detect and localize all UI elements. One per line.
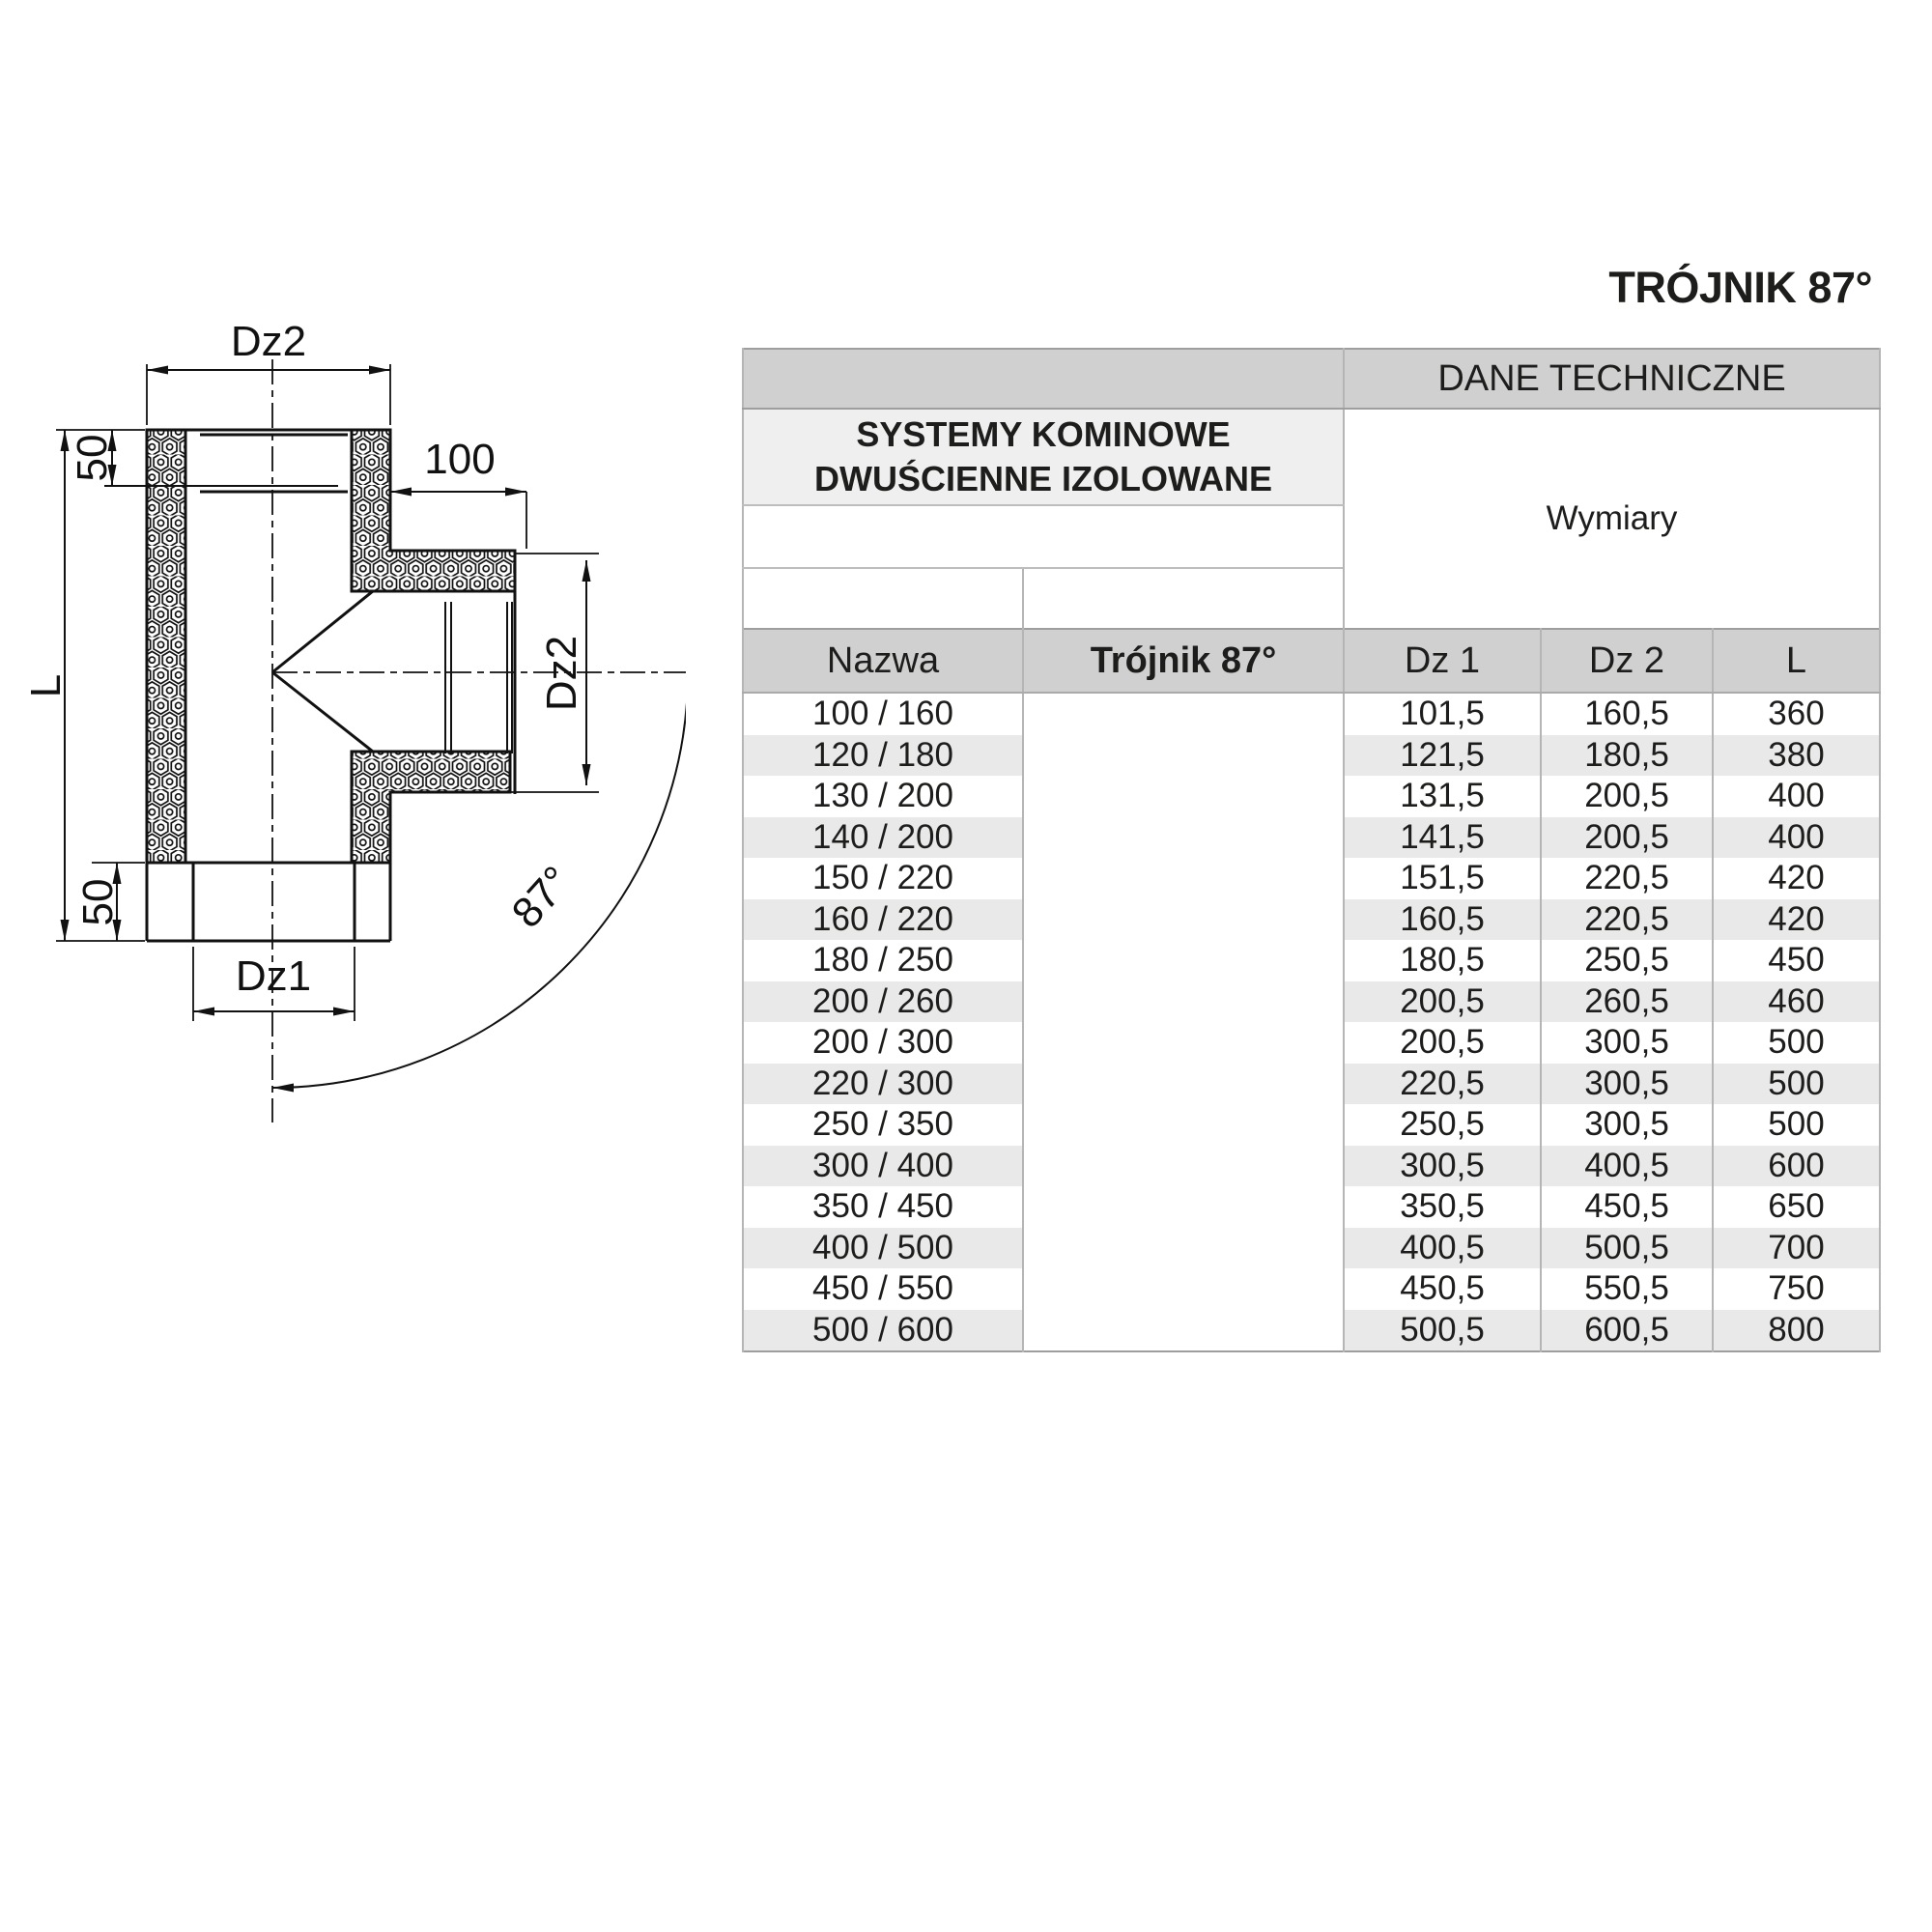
col-header-dz1: Dz 1 xyxy=(1344,629,1541,693)
extension-lines xyxy=(56,364,599,1021)
cell-l: 700 xyxy=(1713,1228,1880,1269)
cell-l: 420 xyxy=(1713,899,1880,941)
cell-l: 650 xyxy=(1713,1186,1880,1228)
angle-arc xyxy=(272,682,686,1088)
cell-dz2: 250,5 xyxy=(1541,940,1713,981)
cell-nazwa: 120 / 180 xyxy=(743,735,1023,777)
cell-nazwa: 300 / 400 xyxy=(743,1146,1023,1187)
cell-nazwa: 100 / 160 xyxy=(743,693,1023,735)
cell-l: 600 xyxy=(1713,1146,1880,1187)
technical-drawing: Dz2 50 L 100 Dz2 50 Dz1 87° xyxy=(29,241,686,1159)
cell-l: 360 xyxy=(1713,693,1880,735)
header-dane-techniczne: DANE TECHNICZNE xyxy=(1344,349,1880,409)
cell-l: 460 xyxy=(1713,981,1880,1023)
wymiary-cell: Wymiary xyxy=(1344,409,1880,629)
cell-dz2: 220,5 xyxy=(1541,858,1713,899)
cell-dz2: 500,5 xyxy=(1541,1228,1713,1269)
spacer-cell xyxy=(743,505,1344,568)
cell-dz1: 200,5 xyxy=(1344,1022,1541,1064)
spacer-cell xyxy=(1023,568,1344,629)
cell-l: 420 xyxy=(1713,858,1880,899)
cell-dz2: 450,5 xyxy=(1541,1186,1713,1228)
data-table: DANE TECHNICZNE SYSTEMY KOMINOWE DWUŚCIE… xyxy=(742,348,1881,1352)
cell-nazwa: 500 / 600 xyxy=(743,1310,1023,1352)
cell-nazwa: 350 / 450 xyxy=(743,1186,1023,1228)
header-band-row: DANE TECHNICZNE xyxy=(743,349,1880,409)
product-group-line2: DWUŚCIENNE IZOLOWANE xyxy=(744,457,1343,501)
cell-dz1: 500,5 xyxy=(1344,1310,1541,1352)
col-header-nazwa: Nazwa xyxy=(743,629,1023,693)
insulation-hatch xyxy=(147,430,515,863)
cell-l: 400 xyxy=(1713,817,1880,859)
cell-dz1: 151,5 xyxy=(1344,858,1541,899)
cell-nazwa: 160 / 220 xyxy=(743,899,1023,941)
page: TRÓJNIK 87° xyxy=(0,0,1932,1932)
product-group-cell: SYSTEMY KOMINOWE DWUŚCIENNE IZOLOWANE xyxy=(743,409,1344,505)
spacer-cell xyxy=(743,568,1023,629)
cell-l: 380 xyxy=(1713,735,1880,777)
cell-nazwa: 140 / 200 xyxy=(743,817,1023,859)
cell-dz2: 600,5 xyxy=(1541,1310,1713,1352)
col-header-l: L xyxy=(1713,629,1880,693)
cell-dz1: 350,5 xyxy=(1344,1186,1541,1228)
cell-l: 800 xyxy=(1713,1310,1880,1352)
cell-dz1: 300,5 xyxy=(1344,1146,1541,1187)
cell-dz2: 550,5 xyxy=(1541,1268,1713,1310)
cell-nazwa: 400 / 500 xyxy=(743,1228,1023,1269)
cell-dz2: 300,5 xyxy=(1541,1104,1713,1146)
cell-dz1: 400,5 xyxy=(1344,1228,1541,1269)
product-image-cell xyxy=(1023,693,1344,1351)
cell-dz2: 260,5 xyxy=(1541,981,1713,1023)
cell-dz2: 300,5 xyxy=(1541,1064,1713,1105)
dim-label-dz1: Dz1 xyxy=(236,952,311,1000)
cell-nazwa: 250 / 350 xyxy=(743,1104,1023,1146)
cell-dz1: 101,5 xyxy=(1344,693,1541,735)
dim-label-50-top: 50 xyxy=(69,435,116,482)
cell-nazwa: 130 / 200 xyxy=(743,776,1023,817)
cell-nazwa: 450 / 550 xyxy=(743,1268,1023,1310)
cell-dz1: 200,5 xyxy=(1344,981,1541,1023)
cell-l: 750 xyxy=(1713,1268,1880,1310)
cell-nazwa: 220 / 300 xyxy=(743,1064,1023,1105)
cell-dz1: 160,5 xyxy=(1344,899,1541,941)
cell-dz1: 180,5 xyxy=(1344,940,1541,981)
cell-nazwa: 180 / 250 xyxy=(743,940,1023,981)
cell-dz2: 200,5 xyxy=(1541,817,1713,859)
cell-dz2: 400,5 xyxy=(1541,1146,1713,1187)
cell-dz2: 180,5 xyxy=(1541,735,1713,777)
product-group-line1: SYSTEMY KOMINOWE xyxy=(744,412,1343,457)
cell-l: 400 xyxy=(1713,776,1880,817)
dim-label-50-bottom: 50 xyxy=(74,879,122,926)
dim-label-dz2-branch: Dz2 xyxy=(538,636,585,711)
cell-dz2: 160,5 xyxy=(1541,693,1713,735)
cell-dz2: 300,5 xyxy=(1541,1022,1713,1064)
cell-dz1: 121,5 xyxy=(1344,735,1541,777)
cell-nazwa: 150 / 220 xyxy=(743,858,1023,899)
table-row: 100 / 160 101,5 160,5 360 xyxy=(743,693,1880,735)
dim-label-dz2-top: Dz2 xyxy=(231,318,306,365)
cell-dz1: 450,5 xyxy=(1344,1268,1541,1310)
cell-l: 500 xyxy=(1713,1064,1880,1105)
cell-dz1: 250,5 xyxy=(1344,1104,1541,1146)
cell-dz1: 220,5 xyxy=(1344,1064,1541,1105)
column-header-row: Nazwa Trójnik 87° Dz 1 Dz 2 L xyxy=(743,629,1880,693)
dim-label-l: L xyxy=(29,674,70,697)
col-header-product: Trójnik 87° xyxy=(1023,629,1344,693)
cell-l: 450 xyxy=(1713,940,1880,981)
dim-label-100: 100 xyxy=(424,436,495,483)
cell-nazwa: 200 / 300 xyxy=(743,1022,1023,1064)
cell-nazwa: 200 / 260 xyxy=(743,981,1023,1023)
cell-dz1: 141,5 xyxy=(1344,817,1541,859)
header-band-empty xyxy=(743,349,1344,409)
cell-l: 500 xyxy=(1713,1104,1880,1146)
cell-l: 500 xyxy=(1713,1022,1880,1064)
product-group-row: SYSTEMY KOMINOWE DWUŚCIENNE IZOLOWANE Wy… xyxy=(743,409,1880,505)
dim-label-angle: 87° xyxy=(502,858,581,937)
cell-dz2: 200,5 xyxy=(1541,776,1713,817)
cell-dz1: 131,5 xyxy=(1344,776,1541,817)
cell-dz2: 220,5 xyxy=(1541,899,1713,941)
col-header-dz2: Dz 2 xyxy=(1541,629,1713,693)
page-title: TRÓJNIK 87° xyxy=(1608,263,1872,313)
pipe-outline xyxy=(147,430,515,941)
